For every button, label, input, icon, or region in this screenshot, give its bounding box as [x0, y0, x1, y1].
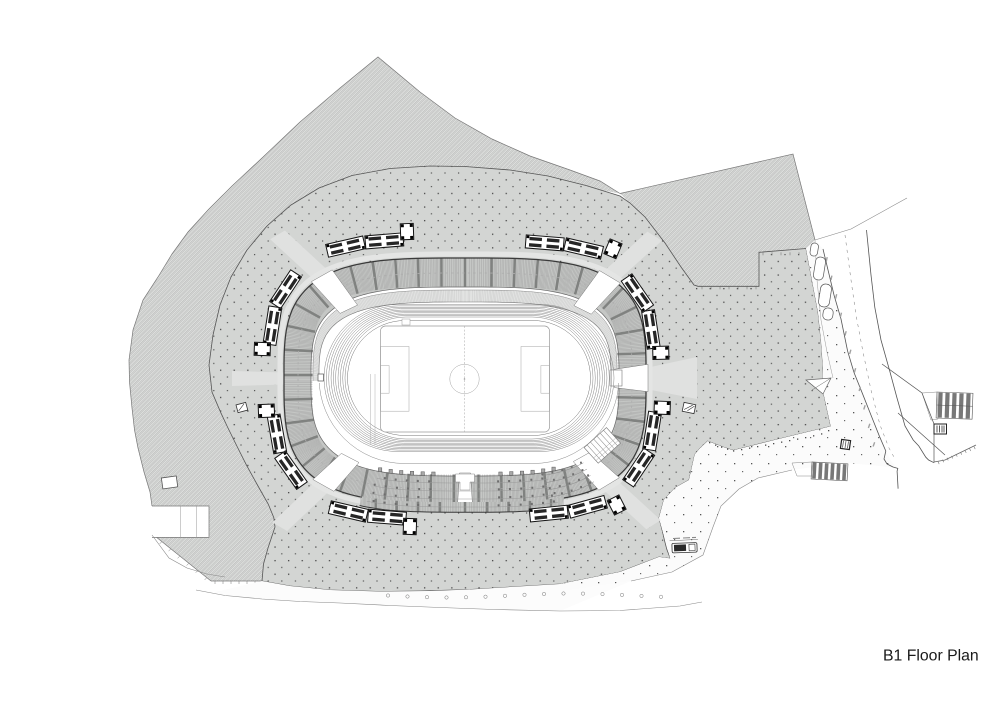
svg-text:B1 Floor Plan: B1 Floor Plan: [883, 648, 979, 665]
